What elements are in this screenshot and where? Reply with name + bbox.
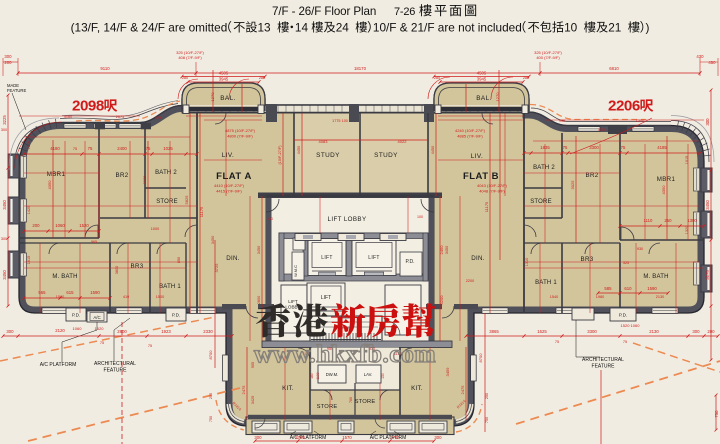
svg-text:4505: 4505 xyxy=(219,71,229,76)
svg-text:LIFT: LIFT xyxy=(321,255,332,261)
svg-text:ARCHITECTURAL: ARCHITECTURAL xyxy=(94,361,136,367)
svg-text:450: 450 xyxy=(708,60,716,65)
svg-text:400 (7/F-9/F): 400 (7/F-9/F) xyxy=(536,55,560,60)
svg-text:300: 300 xyxy=(705,118,710,126)
svg-text:3025: 3025 xyxy=(142,175,147,185)
svg-text:280: 280 xyxy=(259,76,265,80)
svg-text:FEATURE: FEATURE xyxy=(104,368,128,374)
svg-text:300: 300 xyxy=(1,128,7,132)
svg-text:1580: 1580 xyxy=(56,295,64,299)
svg-text:150: 150 xyxy=(267,217,273,221)
svg-text:STUDY: STUDY xyxy=(374,152,398,159)
svg-text:408 (7/F-9/F): 408 (7/F-9/F) xyxy=(178,55,202,60)
svg-text:750: 750 xyxy=(485,417,489,423)
svg-text:1520 1060: 1520 1060 xyxy=(621,323,641,328)
svg-text:14: 14 xyxy=(295,21,309,35)
svg-text:A/C PLATFORM: A/C PLATFORM xyxy=(370,435,407,441)
svg-text:200: 200 xyxy=(707,329,715,334)
svg-text:STORE: STORE xyxy=(355,399,376,405)
svg-text:13: 13 xyxy=(258,21,272,35)
svg-text:W.M.C: W.M.C xyxy=(293,265,298,277)
svg-text:2120: 2120 xyxy=(55,328,65,333)
svg-text:2450: 2450 xyxy=(439,245,444,255)
svg-text:280: 280 xyxy=(182,76,188,80)
svg-text:MBR1: MBR1 xyxy=(657,176,676,183)
svg-text:1320: 1320 xyxy=(685,226,689,234)
svg-text:1520: 1520 xyxy=(95,326,105,331)
svg-text:8700: 8700 xyxy=(478,353,483,363)
svg-text:FLAT A: FLAT A xyxy=(216,171,252,182)
svg-text:FEATURE: FEATURE xyxy=(7,88,26,93)
svg-text:10/F & 21/F are not included: 10/F & 21/F are not included xyxy=(373,21,522,35)
svg-text:4415 (7/F-9/F): 4415 (7/F-9/F) xyxy=(216,189,242,194)
svg-text:3225: 3225 xyxy=(2,115,7,125)
svg-text:1060: 1060 xyxy=(73,326,83,331)
svg-text:2800: 2800 xyxy=(257,296,261,304)
svg-text:1425: 1425 xyxy=(27,206,31,214)
svg-text:4450: 4450 xyxy=(297,146,301,154)
svg-text:75: 75 xyxy=(100,341,104,345)
svg-text:675: 675 xyxy=(155,116,161,120)
svg-text:P.D.: P.D. xyxy=(405,259,414,265)
svg-text:3450: 3450 xyxy=(2,270,7,280)
svg-text:2200: 2200 xyxy=(466,279,474,283)
svg-text:1590: 1590 xyxy=(647,286,657,291)
svg-text:615: 615 xyxy=(66,290,74,295)
svg-text:(10/F-27/F): (10/F-27/F) xyxy=(278,145,282,165)
svg-text:325: 325 xyxy=(623,261,629,265)
svg-text:1000: 1000 xyxy=(151,227,159,231)
svg-text:75: 75 xyxy=(621,145,626,150)
svg-text:1775 100: 1775 100 xyxy=(332,119,348,123)
svg-text:1590: 1590 xyxy=(90,290,100,295)
svg-text:2675: 2675 xyxy=(116,115,124,119)
svg-text:300: 300 xyxy=(254,435,262,440)
svg-text:2130: 2130 xyxy=(656,295,664,299)
svg-text:KIT.: KIT. xyxy=(411,385,423,392)
svg-text:1300: 1300 xyxy=(687,218,697,223)
svg-text:250: 250 xyxy=(485,393,489,399)
svg-text:FLAT B: FLAT B xyxy=(463,171,499,182)
svg-text:8700: 8700 xyxy=(208,350,213,360)
svg-text:4350: 4350 xyxy=(47,180,52,190)
svg-text:FEATURE: FEATURE xyxy=(592,364,616,370)
svg-text:3450: 3450 xyxy=(257,246,261,254)
svg-text:200: 200 xyxy=(32,223,40,228)
svg-text:3300: 3300 xyxy=(587,329,597,334)
svg-text:3945: 3945 xyxy=(219,77,229,82)
svg-text:LIV.: LIV. xyxy=(222,152,234,159)
svg-text:BATH 2: BATH 2 xyxy=(533,165,555,171)
svg-text:BR2: BR2 xyxy=(116,172,129,179)
svg-text:300: 300 xyxy=(1,237,7,241)
svg-text:4410 (10/F-27/F): 4410 (10/F-27/F) xyxy=(214,183,245,188)
svg-text:4505: 4505 xyxy=(477,71,487,76)
svg-text:www.hkxfb.com: www.hkxfb.com xyxy=(254,339,436,368)
svg-text:11175: 11175 xyxy=(484,201,489,212)
svg-text:1270: 1270 xyxy=(210,92,215,102)
svg-text:LIFT: LIFT xyxy=(368,255,379,261)
svg-text:BATH 1: BATH 1 xyxy=(535,280,557,286)
svg-text:585: 585 xyxy=(604,286,612,291)
svg-text:75: 75 xyxy=(555,340,559,344)
svg-text:3865: 3865 xyxy=(489,329,499,334)
svg-text:18170: 18170 xyxy=(354,66,367,71)
svg-text:ARCHITECTURAL: ARCHITECTURAL xyxy=(582,357,624,363)
svg-text:BAL.: BAL. xyxy=(476,95,491,102)
svg-text:300: 300 xyxy=(692,329,700,334)
svg-text:A/C PLATFORM: A/C PLATFORM xyxy=(40,362,77,368)
svg-text:430: 430 xyxy=(696,54,704,59)
svg-text:2098: 2098 xyxy=(72,98,104,115)
svg-text:930: 930 xyxy=(559,119,565,123)
svg-text:100: 100 xyxy=(417,215,423,219)
svg-text:LIFT: LIFT xyxy=(321,295,331,301)
svg-text:1025: 1025 xyxy=(163,146,173,151)
svg-text:DIN.: DIN. xyxy=(471,255,485,262)
svg-text:2475: 2475 xyxy=(460,385,465,395)
svg-text:11175: 11175 xyxy=(199,206,204,217)
svg-text:3945: 3945 xyxy=(477,77,487,82)
svg-text:LIFT: LIFT xyxy=(288,299,298,304)
svg-text:LIV.: LIV. xyxy=(471,153,483,160)
svg-text:75: 75 xyxy=(148,344,152,348)
svg-text:LIFT LOBBY: LIFT LOBBY xyxy=(328,216,367,223)
svg-text:): ) xyxy=(646,21,650,35)
svg-text:3200: 3200 xyxy=(439,295,444,305)
svg-text:BATH 2: BATH 2 xyxy=(155,170,177,176)
svg-text:2475: 2475 xyxy=(241,385,246,395)
svg-text:300: 300 xyxy=(6,329,14,334)
svg-text:780: 780 xyxy=(349,397,353,403)
svg-text:1130: 1130 xyxy=(316,372,320,379)
svg-text:750: 750 xyxy=(714,410,719,418)
svg-text:750: 750 xyxy=(209,416,213,422)
svg-text:21: 21 xyxy=(608,21,621,35)
svg-text:4875 (10/F-27/F): 4875 (10/F-27/F) xyxy=(225,128,256,133)
svg-text:STORE: STORE xyxy=(530,199,552,205)
svg-text:4450: 4450 xyxy=(431,146,435,154)
svg-text:2780: 2780 xyxy=(295,435,305,440)
svg-text:1625: 1625 xyxy=(537,329,547,334)
svg-text:75: 75 xyxy=(73,147,77,151)
svg-text:24: 24 xyxy=(336,21,350,35)
svg-text:A/C: A/C xyxy=(93,315,100,320)
svg-text:STUDY: STUDY xyxy=(316,152,340,159)
svg-text:280: 280 xyxy=(434,76,440,80)
svg-text:4240 (10/F-27/F): 4240 (10/F-27/F) xyxy=(455,128,486,133)
svg-text:130: 130 xyxy=(381,373,385,379)
svg-text:1923: 1923 xyxy=(161,329,171,334)
svg-text:4180: 4180 xyxy=(50,146,60,151)
svg-text:M. BATH: M. BATH xyxy=(643,274,668,280)
svg-text:(13/F, 14/F & 24/F are omitted: (13/F, 14/F & 24/F are omitted xyxy=(71,21,228,35)
svg-text:1570: 1570 xyxy=(342,435,352,440)
svg-text:P.D.: P.D. xyxy=(619,313,627,318)
svg-text:610: 610 xyxy=(624,286,632,291)
svg-text:3459: 3459 xyxy=(445,367,450,377)
svg-text:5825: 5825 xyxy=(184,195,189,205)
svg-text:4800 (7/F-9/F): 4800 (7/F-9/F) xyxy=(227,134,253,139)
svg-text:1520: 1520 xyxy=(79,223,89,228)
svg-text:3425: 3425 xyxy=(251,396,255,404)
svg-text:3800: 3800 xyxy=(115,266,119,274)
svg-text:250: 250 xyxy=(209,393,213,399)
svg-text:75: 75 xyxy=(563,145,568,150)
svg-text:300: 300 xyxy=(4,54,12,59)
svg-text:4043 (10/F-27/F): 4043 (10/F-27/F) xyxy=(477,183,508,188)
svg-text:2130: 2130 xyxy=(649,329,659,334)
svg-text:4350: 4350 xyxy=(661,185,666,195)
svg-text:3450: 3450 xyxy=(705,200,710,210)
svg-text:6810: 6810 xyxy=(609,66,619,71)
svg-text:3025: 3025 xyxy=(570,180,575,190)
svg-text:M. BATH: M. BATH xyxy=(52,274,77,280)
svg-text:DIN.: DIN. xyxy=(226,255,240,262)
svg-text:9110: 9110 xyxy=(100,66,110,71)
svg-text:BATH 1: BATH 1 xyxy=(159,284,181,290)
svg-text:1835: 1835 xyxy=(540,145,550,150)
svg-text:250: 250 xyxy=(664,218,672,223)
svg-text:DW.M.: DW.M. xyxy=(326,372,339,377)
svg-text:3725: 3725 xyxy=(214,263,219,273)
svg-text:7/F - 26/F Floor Plan: 7/F - 26/F Floor Plan xyxy=(272,5,376,18)
svg-text:3450: 3450 xyxy=(2,200,7,210)
svg-text:4048 (7/F-9/F): 4048 (7/F-9/F) xyxy=(479,189,505,194)
svg-text:565: 565 xyxy=(38,290,46,295)
svg-text:10: 10 xyxy=(564,21,578,35)
svg-text:75: 75 xyxy=(88,146,93,151)
svg-text:3450: 3450 xyxy=(445,246,449,254)
svg-text:4160: 4160 xyxy=(64,115,72,119)
svg-text:1015: 1015 xyxy=(685,156,689,164)
svg-text:1060: 1060 xyxy=(55,223,65,228)
svg-text:4185: 4185 xyxy=(657,145,667,150)
svg-text:2780: 2780 xyxy=(390,435,400,440)
svg-text:STORE: STORE xyxy=(156,199,178,205)
svg-text:4885 (7/F-9/F): 4885 (7/F-9/F) xyxy=(457,134,483,139)
svg-text:75: 75 xyxy=(623,340,627,344)
svg-text:1540: 1540 xyxy=(550,295,558,299)
svg-text:965: 965 xyxy=(91,240,97,244)
svg-text:930: 930 xyxy=(637,247,643,251)
svg-text:STORE: STORE xyxy=(317,404,338,410)
svg-text:1980: 1980 xyxy=(596,295,604,299)
svg-text:2330: 2330 xyxy=(203,329,213,334)
svg-text:200: 200 xyxy=(4,60,12,65)
svg-text:KIT.: KIT. xyxy=(282,385,294,392)
svg-text:P.D.: P.D. xyxy=(72,313,80,318)
svg-text:2400: 2400 xyxy=(117,146,127,151)
svg-text:2206: 2206 xyxy=(608,98,640,115)
svg-text:LAV.: LAV. xyxy=(364,372,372,377)
svg-text:3175: 3175 xyxy=(705,270,710,280)
svg-text:280: 280 xyxy=(523,76,529,80)
svg-text:300: 300 xyxy=(434,435,442,440)
svg-text:P.D.: P.D. xyxy=(172,313,180,318)
svg-text:3350: 3350 xyxy=(598,128,606,132)
svg-text:1615: 1615 xyxy=(27,256,31,264)
svg-text:3450: 3450 xyxy=(211,236,215,244)
svg-text:180: 180 xyxy=(310,373,314,379)
svg-text:BAL.: BAL. xyxy=(220,95,235,102)
svg-text:7-26: 7-26 xyxy=(394,6,415,18)
svg-text:BR3: BR3 xyxy=(131,263,144,270)
svg-text:MBR1: MBR1 xyxy=(47,171,66,178)
